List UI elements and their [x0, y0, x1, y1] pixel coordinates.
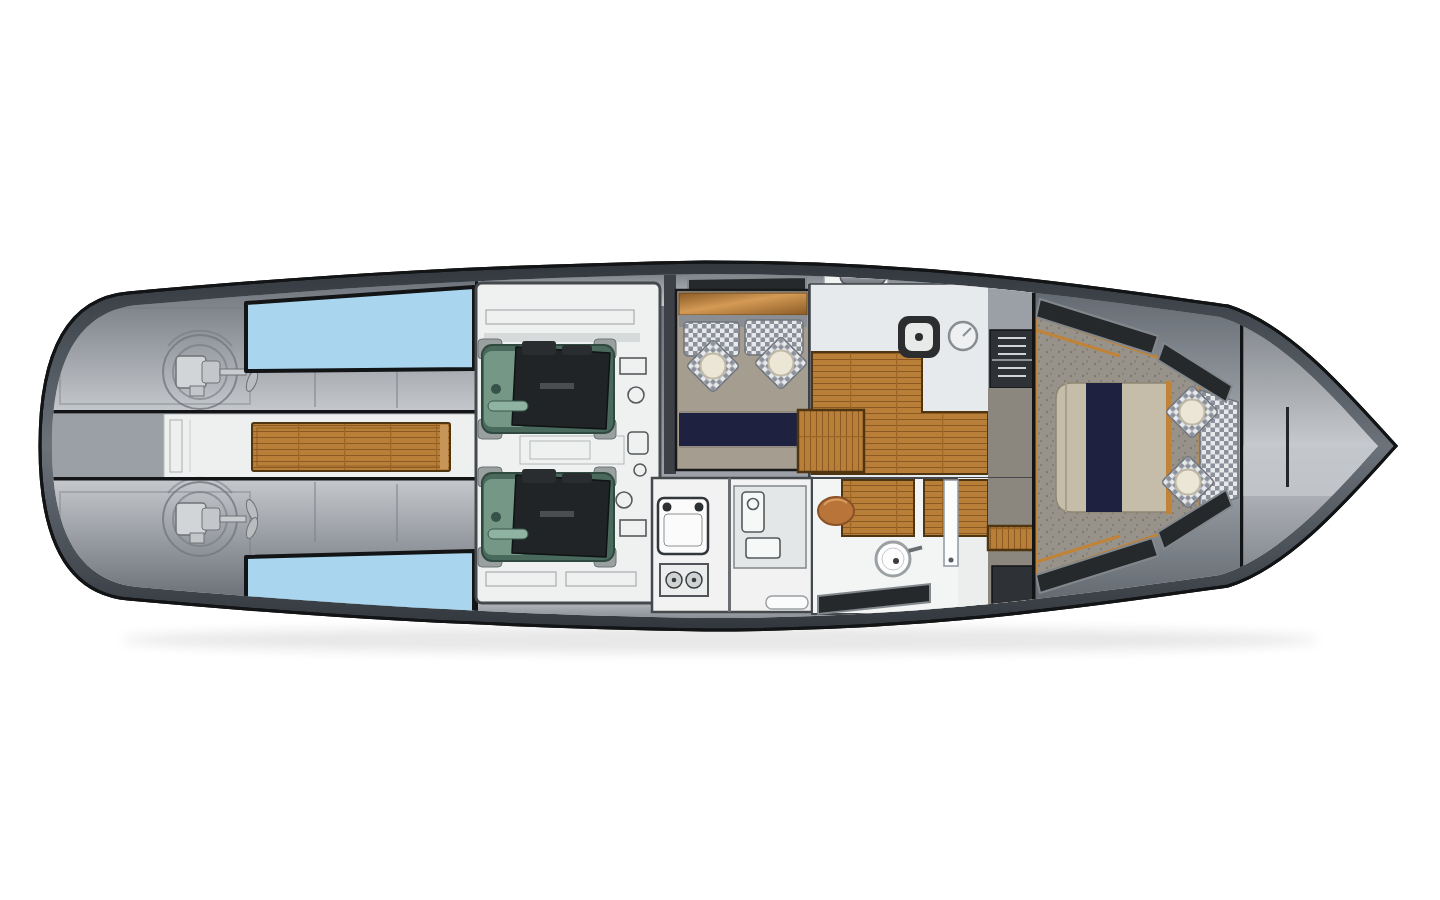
burner-center	[672, 578, 677, 583]
utility-partition	[728, 478, 731, 612]
stairwell-lower	[988, 478, 1034, 612]
shower-seat	[746, 538, 780, 558]
dinette-sideboard	[679, 293, 807, 315]
door-handle	[949, 558, 954, 563]
washer-knob	[663, 503, 672, 512]
teak-cockpit-plank	[252, 423, 450, 471]
basin-drain	[893, 558, 899, 564]
dinette-table	[679, 413, 807, 446]
dinette	[664, 266, 810, 474]
deck-divider-port	[44, 410, 480, 414]
page	[0, 0, 1440, 900]
deck-seam	[314, 482, 316, 542]
stair-landing	[988, 388, 1034, 478]
bed-runner	[1086, 383, 1122, 512]
forward-cabin	[1032, 262, 1244, 630]
cabin-forward-bulkhead	[1240, 310, 1244, 582]
utility-room	[652, 478, 812, 612]
companionway-ladder	[990, 330, 1034, 388]
skylight-port	[246, 287, 474, 371]
deck-divider-starboard	[44, 477, 480, 481]
headboard-trim	[1166, 381, 1171, 514]
washer-knob	[695, 503, 704, 512]
glass-door	[944, 480, 958, 566]
galley	[798, 284, 1034, 478]
door-sill	[766, 596, 808, 609]
burner-center	[692, 578, 697, 583]
foredeck-port	[1244, 262, 1404, 446]
sink-drain	[915, 333, 923, 341]
aft-center-deck	[44, 414, 166, 478]
engine-starboard	[478, 467, 616, 567]
engine-room	[476, 283, 660, 603]
companionway-steps	[798, 410, 864, 472]
cabin-aft-wall	[1032, 268, 1036, 624]
teak-stool	[818, 497, 854, 525]
yacht-deck-plan	[0, 0, 1440, 900]
dinette-pillar	[664, 266, 676, 474]
teak-step	[988, 526, 1034, 550]
plank-end-cap	[440, 425, 448, 469]
aft-deck	[44, 264, 480, 617]
wash-basin	[876, 542, 910, 576]
hatch-band-top	[484, 333, 640, 342]
deck-seam	[396, 484, 398, 542]
engine-port	[478, 339, 616, 439]
centerline-mark	[1286, 407, 1289, 487]
